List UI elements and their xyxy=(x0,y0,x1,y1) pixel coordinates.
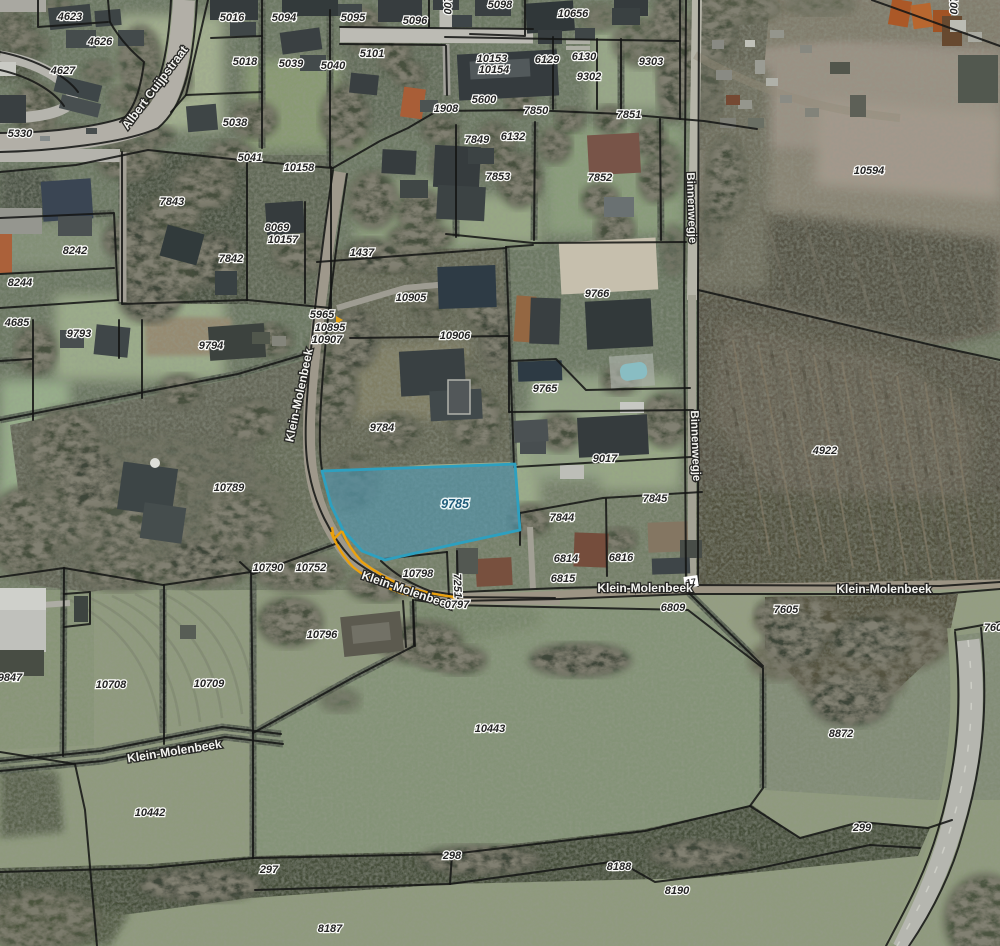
svg-text:8190: 8190 xyxy=(665,885,690,897)
svg-text:Klein-Molenbeek: Klein-Molenbeek xyxy=(836,582,932,596)
svg-text:5096: 5096 xyxy=(403,15,428,27)
svg-text:760: 760 xyxy=(984,622,1000,634)
svg-text:4627: 4627 xyxy=(50,65,76,77)
svg-text:7843: 7843 xyxy=(160,196,184,208)
svg-text:8069: 8069 xyxy=(265,222,290,234)
svg-text:9017: 9017 xyxy=(593,453,618,465)
svg-text:10442: 10442 xyxy=(135,807,166,819)
svg-text:Binnenwegje: Binnenwegje xyxy=(684,172,698,243)
svg-text:10158: 10158 xyxy=(284,162,315,174)
svg-text:7852: 7852 xyxy=(588,172,612,184)
svg-text:5100: 5100 xyxy=(441,0,453,15)
svg-text:4623: 4623 xyxy=(57,11,82,23)
svg-text:5038: 5038 xyxy=(223,117,248,129)
svg-text:7842: 7842 xyxy=(219,253,243,265)
svg-text:5094: 5094 xyxy=(272,12,296,24)
svg-text:6815: 6815 xyxy=(551,573,576,585)
svg-text:5330: 5330 xyxy=(8,128,33,140)
svg-text:8188: 8188 xyxy=(607,861,632,873)
svg-text:5965: 5965 xyxy=(310,309,335,321)
svg-text:9794: 9794 xyxy=(199,340,223,352)
svg-text:10790: 10790 xyxy=(253,562,284,574)
svg-text:9847: 9847 xyxy=(0,672,23,684)
svg-text:10906: 10906 xyxy=(440,330,471,342)
svg-text:7845: 7845 xyxy=(643,493,668,505)
svg-text:5600: 5600 xyxy=(472,94,497,106)
svg-text:0797: 0797 xyxy=(445,599,470,611)
svg-text:8187: 8187 xyxy=(318,923,343,935)
svg-text:6129: 6129 xyxy=(535,54,560,66)
svg-text:7851: 7851 xyxy=(617,109,641,121)
svg-text:10708: 10708 xyxy=(96,679,127,691)
svg-text:Klein-Molenbeek: Klein-Molenbeek xyxy=(597,581,693,595)
svg-text:9793: 9793 xyxy=(67,328,91,340)
svg-text:7605: 7605 xyxy=(774,604,799,616)
svg-text:6132: 6132 xyxy=(501,131,525,143)
svg-text:298: 298 xyxy=(442,850,462,862)
svg-text:9766: 9766 xyxy=(585,288,610,300)
svg-text:299: 299 xyxy=(852,822,872,834)
svg-text:10443: 10443 xyxy=(475,723,506,735)
svg-text:10752: 10752 xyxy=(296,562,327,574)
svg-text:10709: 10709 xyxy=(194,678,225,690)
svg-text:10907: 10907 xyxy=(312,334,343,346)
svg-text:6130: 6130 xyxy=(572,51,597,63)
svg-text:8242: 8242 xyxy=(63,245,87,257)
svg-text:10796: 10796 xyxy=(307,629,338,641)
svg-text:7251: 7251 xyxy=(451,573,464,598)
svg-text:4685: 4685 xyxy=(4,317,30,329)
svg-text:9784: 9784 xyxy=(370,422,394,434)
svg-text:5098: 5098 xyxy=(488,0,513,11)
svg-text:5039: 5039 xyxy=(279,58,304,70)
svg-text:5095: 5095 xyxy=(341,12,366,24)
svg-text:5040: 5040 xyxy=(321,60,346,72)
svg-text:8244: 8244 xyxy=(8,277,32,289)
svg-text:5016: 5016 xyxy=(220,12,245,24)
svg-text:4626: 4626 xyxy=(87,36,113,48)
svg-text:6816: 6816 xyxy=(609,552,634,564)
svg-text:6809: 6809 xyxy=(661,602,686,614)
svg-text:10154: 10154 xyxy=(479,64,510,76)
svg-text:10895: 10895 xyxy=(315,322,346,334)
svg-text:297: 297 xyxy=(259,864,279,876)
svg-text:7850: 7850 xyxy=(524,105,549,117)
svg-text:10905: 10905 xyxy=(396,292,427,304)
svg-text:10798: 10798 xyxy=(403,568,434,580)
svg-text:5041: 5041 xyxy=(238,152,262,164)
svg-text:7844: 7844 xyxy=(550,512,574,524)
svg-text:8872: 8872 xyxy=(829,728,853,740)
svg-text:6814: 6814 xyxy=(554,553,578,565)
svg-text:1437: 1437 xyxy=(350,247,375,259)
svg-text:5100: 5100 xyxy=(947,0,959,15)
svg-text:9785: 9785 xyxy=(441,497,470,511)
svg-text:4922: 4922 xyxy=(812,445,837,457)
svg-text:9303: 9303 xyxy=(639,56,663,68)
svg-text:5101: 5101 xyxy=(360,48,384,60)
svg-text:7849: 7849 xyxy=(465,134,490,146)
svg-text:5018: 5018 xyxy=(233,56,258,68)
svg-text:10656: 10656 xyxy=(558,8,589,20)
svg-text:9765: 9765 xyxy=(533,383,558,395)
svg-text:7853: 7853 xyxy=(486,171,510,183)
svg-text:10157: 10157 xyxy=(268,234,299,246)
svg-text:9302: 9302 xyxy=(577,71,601,83)
svg-text:10789: 10789 xyxy=(214,482,245,494)
svg-text:10594: 10594 xyxy=(854,165,885,177)
svg-text:Binnenwegje: Binnenwegje xyxy=(688,410,702,481)
svg-text:1908: 1908 xyxy=(434,103,459,115)
